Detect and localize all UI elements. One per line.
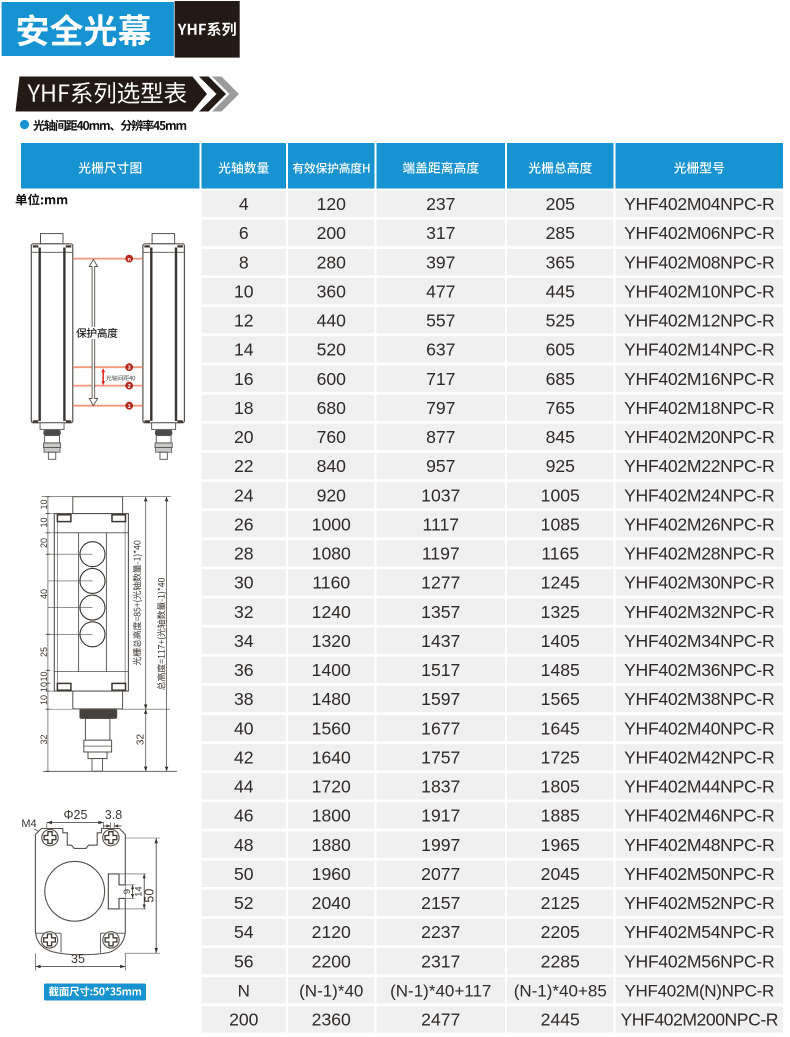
svg-text:445: 445 [546,281,576,301]
svg-text:YHF402M52NPC-R: YHF402M52NPC-R [624,893,774,913]
svg-text:(N-1)*40: (N-1)*40 [299,982,363,1001]
svg-text:1640: 1640 [312,748,351,768]
svg-text:2125: 2125 [541,893,580,913]
svg-text:24: 24 [234,485,254,505]
svg-text:(N-1)*40+85: (N-1)*40+85 [514,982,607,1001]
svg-text:1320: 1320 [312,631,351,651]
svg-text:1080: 1080 [312,544,351,564]
svg-text:38: 38 [234,689,254,709]
svg-text:2360: 2360 [312,1010,351,1030]
svg-text:YHF402M54NPC-R: YHF402M54NPC-R [624,922,774,942]
svg-text:120: 120 [317,194,347,214]
svg-text:1677: 1677 [421,718,460,738]
svg-text:9: 9 [122,889,133,894]
svg-text:12: 12 [234,311,254,331]
svg-text:35: 35 [71,952,85,966]
svg-text:520: 520 [317,340,347,360]
svg-text:YHF402M46NPC-R: YHF402M46NPC-R [624,806,774,826]
svg-text:557: 557 [426,311,455,331]
svg-text:765: 765 [546,398,576,418]
svg-text:605: 605 [546,340,576,360]
svg-text:56: 56 [234,951,254,971]
svg-text:397: 397 [426,252,455,272]
svg-text:40: 40 [234,718,254,738]
svg-text:50: 50 [142,889,156,903]
svg-text:1560: 1560 [312,718,351,738]
svg-text:680: 680 [317,398,347,418]
svg-text:54: 54 [234,922,254,942]
svg-text:16: 16 [234,369,254,389]
svg-text:1480: 1480 [312,689,351,709]
svg-text:1800: 1800 [312,806,351,826]
svg-text:1805: 1805 [541,777,580,797]
svg-text:8: 8 [239,252,249,272]
svg-text:25: 25 [39,647,49,657]
svg-text:40: 40 [39,589,49,599]
svg-text:YHF402M48NPC-R: YHF402M48NPC-R [624,835,774,855]
svg-text:30: 30 [234,573,254,593]
svg-text:26: 26 [234,514,254,534]
svg-text:600: 600 [317,369,347,389]
svg-text:1165: 1165 [541,544,579,564]
svg-text:1965: 1965 [541,835,580,855]
svg-text:YHF402M44NPC-R: YHF402M44NPC-R [624,777,774,797]
svg-text:365: 365 [546,252,576,272]
svg-text:48: 48 [234,835,254,855]
svg-text:1117: 1117 [422,514,459,534]
svg-text:n: n [127,257,131,263]
svg-text:1757: 1757 [421,748,460,768]
svg-text:200: 200 [229,1010,259,1030]
svg-text:2200: 2200 [312,951,351,971]
svg-text:2040: 2040 [312,893,351,913]
svg-text:20: 20 [234,427,254,447]
svg-text:1325: 1325 [541,602,580,622]
svg-text:36: 36 [234,660,254,680]
svg-text:205: 205 [546,194,576,214]
svg-text:1437: 1437 [421,631,460,651]
svg-text:YHF402M24NPC-R: YHF402M24NPC-R [624,485,774,505]
svg-text:YHF402M12NPC-R: YHF402M12NPC-R [624,311,774,331]
svg-text:YHF402M30NPC-R: YHF402M30NPC-R [624,573,774,593]
svg-text:YHF402M04NPC-R: YHF402M04NPC-R [624,194,774,214]
svg-text:1597: 1597 [421,689,460,709]
svg-text:2045: 2045 [541,864,580,884]
svg-text:1357: 1357 [421,602,460,622]
svg-text:1400: 1400 [312,660,351,680]
svg-text:YHF402M(N)NPC-R: YHF402M(N)NPC-R [625,982,774,1001]
svg-text:2477: 2477 [421,1010,460,1030]
svg-text:4: 4 [239,194,249,214]
svg-text:52: 52 [234,893,254,913]
svg-text:10: 10 [39,517,49,527]
svg-text:YHF402M34NPC-R: YHF402M34NPC-R [624,631,774,651]
svg-text:760: 760 [317,427,347,447]
svg-text:34: 34 [234,631,254,651]
svg-text:10: 10 [39,671,49,681]
svg-text:6: 6 [239,223,249,243]
svg-text:440: 440 [317,311,347,331]
svg-text:32: 32 [135,734,146,746]
svg-text:1725: 1725 [541,748,580,768]
svg-text:YHF402M18NPC-R: YHF402M18NPC-R [624,398,774,418]
svg-text:10: 10 [39,695,49,705]
svg-text:YHF402M14NPC-R: YHF402M14NPC-R [624,340,774,360]
svg-text:YHF402M40NPC-R: YHF402M40NPC-R [624,718,774,738]
svg-text:477: 477 [426,281,455,301]
svg-text:920: 920 [317,485,347,505]
svg-text:1645: 1645 [541,718,580,738]
svg-text:3: 3 [128,365,131,371]
svg-text:YHF402M36NPC-R: YHF402M36NPC-R [624,660,774,680]
svg-text:1245: 1245 [541,573,580,593]
svg-text:M4: M4 [21,818,36,830]
svg-text:14: 14 [234,340,254,360]
svg-text:10: 10 [234,281,254,301]
svg-text:YHF402M20NPC-R: YHF402M20NPC-R [624,427,774,447]
svg-text:YHF402M200NPC-R: YHF402M200NPC-R [620,1010,778,1030]
svg-text:32: 32 [39,734,49,744]
svg-text:1: 1 [128,404,131,410]
svg-text:28: 28 [234,544,254,564]
svg-text:1000: 1000 [312,514,351,534]
svg-text:10: 10 [39,499,49,509]
svg-text:(N-1)*40+117: (N-1)*40+117 [390,982,491,1001]
svg-text:2120: 2120 [312,922,351,942]
svg-text:1917: 1917 [421,806,460,826]
svg-text:1197: 1197 [422,544,460,564]
svg-text:285: 285 [546,223,576,243]
svg-text:2: 2 [128,384,131,390]
svg-text:2285: 2285 [541,951,580,971]
svg-text:1405: 1405 [541,631,580,651]
svg-text:YHF402M38NPC-R: YHF402M38NPC-R [624,689,774,709]
svg-text:797: 797 [426,398,455,418]
svg-text:YHF402M56NPC-R: YHF402M56NPC-R [624,951,774,971]
svg-text:877: 877 [426,427,455,447]
svg-text:N: N [238,982,250,1001]
svg-text:YHF402M22NPC-R: YHF402M22NPC-R [624,456,774,476]
svg-text:1160: 1160 [312,573,350,593]
svg-text:1997: 1997 [421,835,460,855]
svg-text:637: 637 [426,340,455,360]
svg-text:YHF402M28NPC-R: YHF402M28NPC-R [624,544,774,564]
svg-text:845: 845 [546,427,576,447]
svg-text:2157: 2157 [421,893,460,913]
svg-text:YHF402M08NPC-R: YHF402M08NPC-R [624,252,774,272]
svg-text:525: 525 [546,311,576,331]
svg-text:1960: 1960 [312,864,351,884]
svg-text:1517: 1517 [421,660,460,680]
svg-text:1485: 1485 [541,660,580,680]
svg-text:50: 50 [234,864,254,884]
svg-text:1885: 1885 [541,806,580,826]
svg-text:2205: 2205 [541,922,580,942]
svg-text:42: 42 [234,748,254,768]
svg-text:360: 360 [317,281,347,301]
svg-text:18: 18 [234,398,254,418]
svg-text:200: 200 [317,223,347,243]
svg-text:YHF402M10NPC-R: YHF402M10NPC-R [624,281,774,301]
svg-text:280: 280 [317,252,347,272]
svg-text:685: 685 [546,369,576,389]
svg-text:YHF402M16NPC-R: YHF402M16NPC-R [624,369,774,389]
svg-text:2077: 2077 [421,864,460,884]
svg-text:10: 10 [39,682,49,692]
svg-text:YHF402M42NPC-R: YHF402M42NPC-R [624,748,774,768]
svg-text:925: 925 [546,456,576,476]
svg-text:2237: 2237 [421,922,460,942]
svg-text:1005: 1005 [541,485,580,505]
svg-text:1240: 1240 [312,602,351,622]
svg-text:840: 840 [317,456,347,476]
svg-text:YHF402M06NPC-R: YHF402M06NPC-R [624,223,774,243]
svg-text:32: 32 [234,602,254,622]
svg-text:3.8: 3.8 [105,808,122,822]
svg-text:1037: 1037 [421,485,460,505]
svg-text:317: 317 [426,223,455,243]
svg-text:1085: 1085 [541,514,580,534]
svg-text:46: 46 [234,806,254,826]
svg-text:2317: 2317 [421,951,460,971]
svg-text:20: 20 [39,538,49,548]
svg-text:1837: 1837 [421,777,460,797]
svg-text:Φ25: Φ25 [64,808,88,822]
svg-text:YHF402M50NPC-R: YHF402M50NPC-R [624,864,774,884]
svg-text:717: 717 [426,369,455,389]
svg-text:22: 22 [234,456,254,476]
svg-text:1720: 1720 [312,777,351,797]
svg-text:1277: 1277 [421,573,460,593]
svg-text:YHF402M32NPC-R: YHF402M32NPC-R [624,602,774,622]
svg-text:957: 957 [426,456,455,476]
svg-text:YHF402M26NPC-R: YHF402M26NPC-R [624,514,774,534]
svg-text:237: 237 [426,194,455,214]
svg-text:44: 44 [234,777,254,797]
svg-text:1880: 1880 [312,835,351,855]
svg-text:1565: 1565 [541,689,580,709]
svg-text:2445: 2445 [541,1010,580,1030]
